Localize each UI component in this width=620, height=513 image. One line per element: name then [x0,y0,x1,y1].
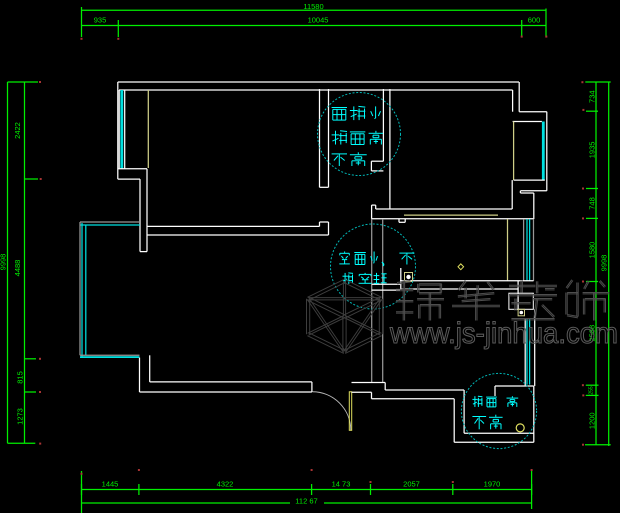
svg-text:9998: 9998 [0,254,8,271]
svg-text:1935: 1935 [588,142,597,159]
svg-text:11580: 11580 [303,2,323,11]
svg-text:14 73: 14 73 [332,480,351,489]
svg-text:815: 815 [16,371,25,384]
svg-text:600: 600 [528,16,541,25]
svg-text:4322: 4322 [217,480,234,489]
svg-text:10045: 10045 [308,16,329,25]
svg-text:www.js-jinhua.com: www.js-jinhua.com [389,317,618,350]
svg-text:1580: 1580 [588,242,597,259]
svg-text:4488: 4488 [13,260,22,277]
svg-text:734: 734 [588,90,597,103]
svg-text:2057: 2057 [403,480,420,489]
svg-text:2422: 2422 [13,122,22,139]
svg-text:1445: 1445 [102,480,119,489]
svg-text:112 67: 112 67 [295,497,317,506]
svg-text:1273: 1273 [16,408,25,425]
svg-text:935: 935 [94,16,107,25]
svg-text:255: 255 [589,386,595,395]
svg-text:1200: 1200 [588,412,597,429]
svg-text:9998: 9998 [600,255,609,272]
svg-text:748: 748 [588,197,597,210]
svg-text:1970: 1970 [484,480,501,489]
